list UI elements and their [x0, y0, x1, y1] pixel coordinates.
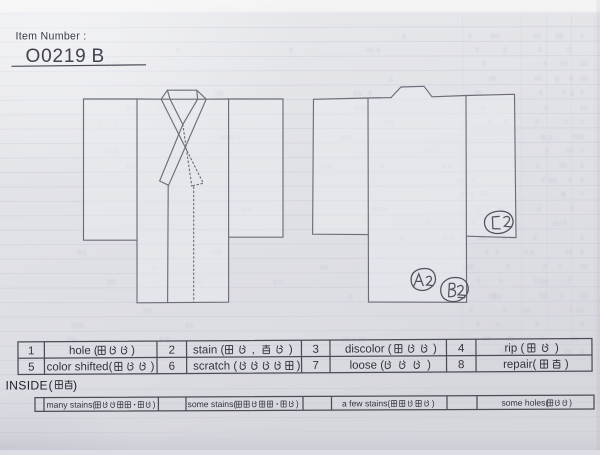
svg-text:8: 8: [477, 278, 481, 285]
svg-text:8: 8: [495, 249, 499, 256]
svg-text:8: 8: [544, 105, 548, 112]
svg-text:8: 8: [499, 278, 503, 285]
svg-text:8: 8: [349, 292, 353, 301]
svg-text:8: 8: [545, 148, 549, 155]
svg-text:8: 8: [540, 134, 544, 141]
svg-text:8: 8: [560, 293, 564, 300]
svg-text:1: 1: [28, 345, 34, 357]
svg-text:5: 5: [28, 362, 34, 374]
svg-text:88: 88: [580, 105, 588, 112]
svg-text:8: 8: [570, 206, 574, 213]
svg-text:8: 8: [580, 307, 584, 314]
svg-text:8: 8: [538, 47, 542, 54]
svg-text:repair(: repair(: [503, 359, 536, 371]
svg-text:88: 88: [560, 61, 568, 68]
svg-text:88: 88: [320, 263, 328, 272]
svg-text:B8: B8: [548, 176, 557, 185]
svg-text:8: 8: [492, 293, 496, 300]
svg-text:8: 8: [536, 163, 540, 170]
svg-text:8: 8: [569, 76, 573, 83]
svg-text:8: 8: [563, 220, 567, 227]
svg-text:8: 8: [506, 264, 510, 271]
svg-text:2: 2: [169, 345, 175, 357]
svg-text:8: 8: [558, 264, 562, 271]
svg-text:888: 888: [71, 321, 84, 330]
svg-text:8: 8: [535, 322, 539, 329]
svg-text:8: 8: [580, 249, 584, 256]
svg-text:8: 8: [580, 134, 584, 141]
svg-text:88: 88: [571, 336, 579, 343]
svg-text:8: 8: [567, 278, 571, 285]
svg-text:888: 888: [468, 349, 481, 358]
svg-text:8: 8: [543, 61, 547, 68]
svg-text:some stains(: some stains(: [187, 399, 236, 409]
svg-text:): ): [297, 360, 301, 372]
svg-text:): ): [432, 398, 435, 408]
svg-text:8 8: 8 8: [524, 248, 534, 257]
svg-text:B: B: [92, 46, 105, 67]
svg-text:8: 8: [458, 359, 464, 371]
svg-text:hole (: hole (: [69, 345, 98, 357]
svg-text:8 8: 8 8: [273, 277, 283, 286]
svg-text:8: 8: [485, 249, 489, 256]
svg-text:7: 7: [313, 360, 319, 372]
svg-text:B8: B8: [553, 219, 562, 228]
svg-text:): ): [289, 344, 293, 356]
svg-text:8: 8: [580, 148, 584, 155]
svg-text:88: 88: [565, 249, 573, 256]
svg-text:8: 8: [580, 33, 584, 40]
svg-text:8: 8: [555, 75, 559, 84]
svg-text:discolor (: discolor (: [345, 343, 392, 355]
svg-text:INSIDE: INSIDE: [6, 379, 48, 393]
svg-text:): ): [569, 397, 572, 407]
svg-text:): ): [296, 399, 299, 409]
svg-text:Item Number :: Item Number :: [16, 31, 87, 43]
svg-text:88: 88: [580, 293, 588, 300]
svg-text:,: ,: [252, 344, 255, 356]
svg-text:): ): [151, 361, 155, 373]
svg-text:88: 88: [580, 264, 588, 271]
svg-text:88: 88: [143, 306, 151, 315]
svg-text:8: 8: [569, 307, 573, 314]
svg-text:88: 88: [185, 321, 193, 330]
svg-text:many stains(: many stains(: [46, 400, 95, 410]
svg-text:8: 8: [539, 90, 543, 97]
svg-text:8: 8: [564, 119, 568, 126]
svg-text:8: 8: [558, 33, 562, 40]
svg-text:some holes(: some holes(: [501, 398, 548, 408]
svg-text:loose (: loose (: [350, 360, 385, 372]
svg-text:88: 88: [539, 293, 547, 300]
svg-text:): ): [73, 379, 77, 393]
svg-text:8: 8: [540, 336, 544, 343]
svg-text:8: 8: [503, 47, 507, 54]
svg-text:): ): [565, 358, 569, 370]
svg-text:8: 8: [580, 322, 584, 329]
svg-text:8: 8: [475, 47, 479, 54]
svg-text:4: 4: [458, 343, 465, 355]
svg-text:8: 8: [503, 307, 507, 314]
svg-text:(: (: [49, 379, 53, 393]
svg-text:8: 8: [580, 191, 584, 198]
svg-text:a few stains(: a few stains(: [342, 398, 390, 408]
svg-text:8: 8: [476, 322, 480, 329]
svg-text:8: 8: [580, 235, 584, 242]
svg-text:scratch (: scratch (: [193, 360, 237, 372]
svg-text:3: 3: [312, 344, 318, 356]
svg-text:88: 88: [580, 76, 588, 83]
svg-text:88: 88: [559, 163, 567, 170]
svg-text:8: 8: [580, 119, 584, 126]
svg-text:8: 8: [562, 90, 566, 97]
svg-text:88: 88: [566, 148, 574, 155]
svg-text:88: 88: [534, 76, 542, 83]
svg-text:8: 8: [535, 119, 539, 126]
svg-text:8: 8: [580, 163, 584, 170]
svg-text:8: 8: [470, 264, 474, 271]
svg-text:): ): [131, 345, 135, 357]
svg-text:8: 8: [570, 89, 574, 98]
svg-text:8: 8: [468, 33, 472, 40]
svg-text:8: 8: [533, 235, 537, 242]
svg-text:stain (: stain (: [193, 344, 225, 356]
svg-text:88: 88: [564, 350, 572, 357]
svg-text:B8: B8: [539, 277, 548, 286]
svg-text:8: 8: [580, 90, 584, 97]
svg-text:8: 8: [541, 177, 545, 184]
svg-text:rip (: rip (: [504, 343, 524, 355]
svg-text:): ): [153, 399, 156, 409]
svg-text:): ): [555, 342, 559, 354]
svg-text:88: 88: [492, 33, 500, 40]
svg-text:6: 6: [169, 361, 175, 373]
svg-text:8: 8: [567, 47, 571, 54]
svg-text:8: 8: [469, 307, 473, 314]
svg-text:8: 8: [496, 322, 500, 329]
svg-text:8: 8: [580, 350, 584, 357]
svg-text:8: 8: [561, 191, 565, 198]
svg-text:): ): [427, 359, 431, 371]
svg-text:8: 8: [568, 177, 572, 184]
svg-text:O0219: O0219: [26, 46, 87, 67]
svg-text:88: 88: [489, 76, 497, 83]
svg-text:): ): [433, 343, 437, 355]
svg-text:88: 88: [522, 306, 530, 315]
svg-text:8: 8: [580, 177, 584, 184]
svg-text:8: 8: [534, 278, 538, 285]
svg-text:8: 8: [543, 264, 547, 271]
svg-text:color shifted(: color shifted(: [47, 361, 113, 373]
svg-text:8: 8: [575, 306, 579, 315]
svg-text:88: 88: [533, 33, 541, 40]
svg-text:8: 8: [537, 206, 541, 213]
svg-text:8: 8: [482, 61, 486, 68]
svg-text:B8: B8: [107, 277, 116, 286]
svg-text:88: 88: [580, 61, 588, 68]
